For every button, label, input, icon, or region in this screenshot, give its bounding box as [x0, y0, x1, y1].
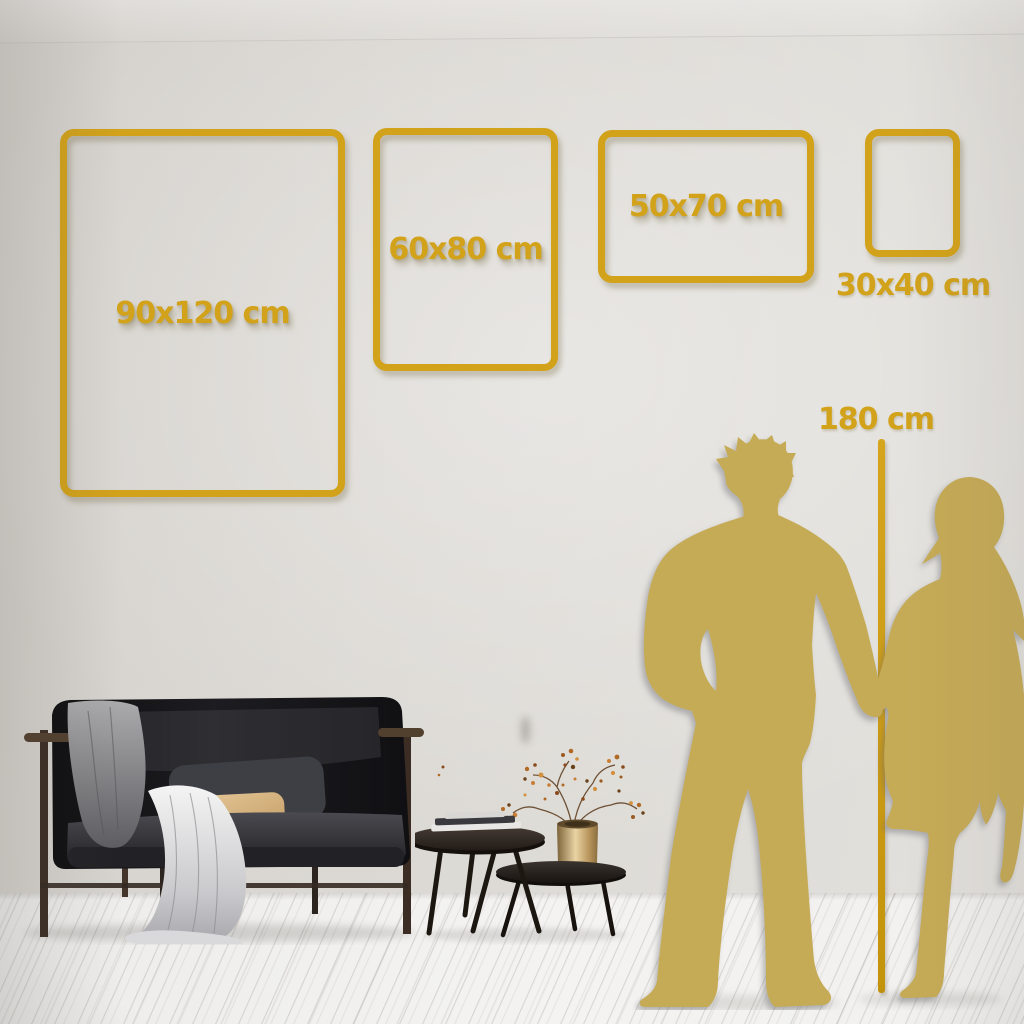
woman-silhouette [870, 477, 1024, 998]
frame-size-label: 90x120 cm [115, 296, 289, 331]
couple-silhouette-illustration [630, 425, 1024, 1010]
table-floor-shadow [423, 928, 627, 942]
man-silhouette-hair [716, 433, 796, 481]
right-table-top [496, 861, 626, 883]
size-guide-scene: 90x120 cm 60x80 cm 50x70 cm 30x40 cm 180… [0, 0, 1024, 1024]
vase-inner [565, 821, 591, 827]
coffee-tables-illustration [415, 735, 645, 945]
frame-size-label: 60x80 cm [388, 232, 542, 267]
frame-outline-50x70: 50x70 cm [598, 130, 814, 283]
sofa-rear-leg [312, 863, 318, 914]
man-silhouette-body [640, 514, 883, 1007]
ceiling-line [0, 0, 1024, 44]
book-stack [431, 810, 522, 831]
frame-size-label-30x40: 30x40 cm [828, 268, 998, 303]
frame-outline-90x120: 90x120 cm [60, 129, 345, 497]
frame-outline-60x80: 60x80 cm [373, 128, 558, 371]
sofa-illustration [10, 695, 430, 945]
frame-size-label: 50x70 cm [629, 189, 783, 224]
frame-outline-30x40 [865, 129, 960, 257]
right-table-legs [503, 881, 613, 935]
left-table-legs [429, 848, 539, 933]
sofa-front-leg [40, 730, 48, 937]
